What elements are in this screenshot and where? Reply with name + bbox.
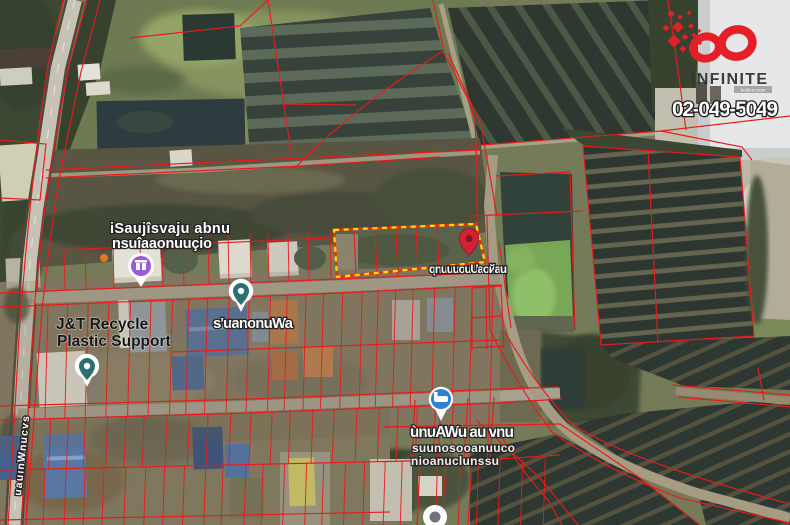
svg-text:nsuîaaonuuçio: nsuîaaonuuçio <box>112 236 212 252</box>
svg-text:s'uanonuWa: s'uanonuWa <box>213 315 294 332</box>
svg-text:J&T Recycle: J&T Recycle <box>56 316 149 333</box>
svg-text:iSaujîsvaju abnu: iSaujîsvaju abnu <box>110 221 230 237</box>
svg-text:suunosooanuuco: suunosooanuuco <box>412 441 515 455</box>
svg-text:build a room: build a room <box>741 88 766 93</box>
svg-text:nioanuclunssu: nioanuclunssu <box>411 454 499 468</box>
svg-text:INFINITE: INFINITE <box>691 71 767 88</box>
svg-text:Plastic Support: Plastic Support <box>57 333 171 350</box>
svg-text:ùnuAWu au vnu: ùnuAWu au vnu <box>410 424 514 441</box>
svg-text:qnuuuouUaoйau: qnuuuouUaoйau <box>429 264 507 276</box>
svg-text:02-049-5049: 02-049-5049 <box>672 98 778 121</box>
